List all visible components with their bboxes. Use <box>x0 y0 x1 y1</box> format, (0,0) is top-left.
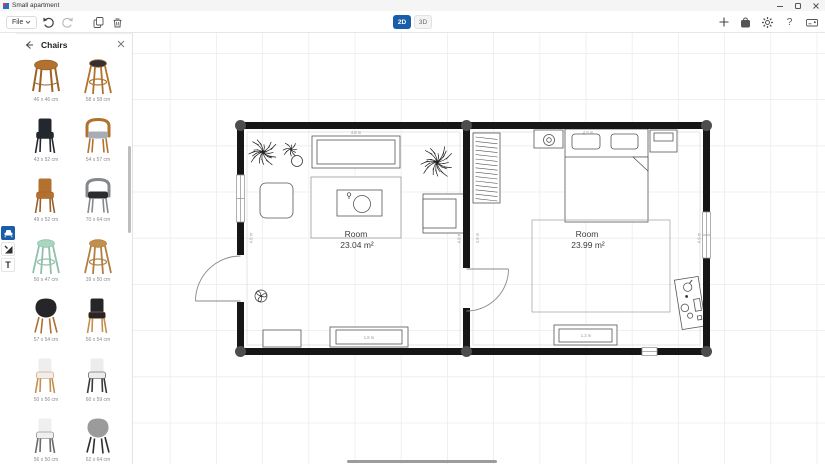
add-button[interactable] <box>716 15 731 30</box>
chair-thumbnail <box>26 416 66 456</box>
plant-pot[interactable] <box>292 156 303 167</box>
chair-dimensions: 56 x 50 cm <box>34 457 58 463</box>
minimize-button[interactable] <box>771 0 789 11</box>
chair-thumbnail <box>78 356 118 396</box>
chair-item[interactable]: 50 x 47 cm <box>20 236 72 296</box>
chair-thumbnail <box>78 56 118 96</box>
chair-item[interactable]: 43 x 52 cm <box>20 116 72 176</box>
nightstand-left[interactable] <box>534 130 563 148</box>
rug[interactable] <box>532 220 670 312</box>
bed[interactable] <box>565 129 648 222</box>
trash-icon <box>111 16 124 29</box>
titlebar: Small apartment <box>0 0 825 11</box>
chair-dimensions: 39 x 50 cm <box>86 277 110 283</box>
catalog-header: Chairs <box>16 34 132 56</box>
grid-lines <box>133 33 825 464</box>
window-bottom-wall <box>642 348 657 356</box>
armchair[interactable] <box>260 183 293 218</box>
window-controls <box>771 0 825 11</box>
copy-button[interactable] <box>91 15 106 30</box>
chair-thumbnail <box>78 296 118 336</box>
window-title: Small apartment <box>12 2 59 9</box>
close-icon <box>812 2 820 10</box>
shopping-bag-icon <box>739 16 752 29</box>
toolbar: File <box>0 11 825 33</box>
desk-left-room[interactable] <box>423 194 464 233</box>
sideboard-top[interactable] <box>312 136 400 168</box>
room-right-area: 23.99 m² <box>571 240 605 250</box>
chair-dimensions: 50 x 56 cm <box>34 397 58 403</box>
chair-dimensions: 60 x 59 cm <box>86 397 110 403</box>
floorplan-canvas[interactable]: Room 23.04 m² Room 23.99 m² 4.8 m 4.9 m … <box>133 33 825 464</box>
close-button[interactable] <box>807 0 825 11</box>
chair-thumbnail <box>26 176 66 216</box>
nightstand-right[interactable] <box>650 130 677 152</box>
file-menu-button[interactable]: File <box>6 16 37 29</box>
chair-thumbnail <box>26 236 66 276</box>
chair-dimensions: 62 x 64 cm <box>86 457 110 463</box>
ceiling-fan-icon[interactable] <box>255 290 267 302</box>
chair-item[interactable]: 56 x 50 cm <box>20 416 72 464</box>
chair-item[interactable]: 70 x 64 cm <box>72 176 124 236</box>
dim-room-left-top: 4.8 m <box>351 130 362 135</box>
app-window: Small apartment File <box>0 0 825 464</box>
entrance-door <box>196 256 241 301</box>
dim-room-right-east: 4.9 m <box>697 232 702 243</box>
chair-dimensions: 54 x 57 cm <box>86 157 110 163</box>
dim-dresser-bottom: 1.3 m <box>581 333 592 338</box>
dim-sideboard-bottom: 1.8 m <box>364 335 375 340</box>
catalog-title: Chairs <box>41 40 67 50</box>
panel-scrollbar[interactable] <box>128 146 131 233</box>
chair-dimensions: 49 x 52 cm <box>34 217 58 223</box>
license-button[interactable] <box>804 15 819 30</box>
copy-icon <box>92 16 105 29</box>
settings-button[interactable] <box>760 15 775 30</box>
file-menu-label: File <box>12 19 23 26</box>
undo-icon <box>42 16 55 29</box>
chair-item[interactable]: 58 x 58 cm <box>72 56 124 116</box>
tv-stand[interactable] <box>263 330 301 347</box>
floorplan: Room 23.04 m² Room 23.99 m² 4.8 m 4.9 m … <box>133 33 825 464</box>
shop-button[interactable] <box>738 15 753 30</box>
chair-dimensions: 43 x 52 cm <box>34 157 58 163</box>
help-icon: ? <box>787 17 793 28</box>
pillow <box>572 134 600 149</box>
chevron-down-icon <box>25 19 31 25</box>
chair-dimensions: 70 x 64 cm <box>86 217 110 223</box>
chair-dimensions: 58 x 58 cm <box>86 97 110 103</box>
window-left-wall <box>237 175 245 222</box>
chair-thumbnail <box>78 416 118 456</box>
text-tool-button[interactable]: T <box>1 258 15 272</box>
chair-thumbnail <box>78 116 118 156</box>
chair-dimensions: 50 x 47 cm <box>34 277 58 283</box>
chair-thumbnail <box>78 236 118 276</box>
chair-dimensions: 57 x 54 cm <box>34 337 58 343</box>
catalog-panel: Chairs 46 x 46 cm 58 x 58 cm 43 x 52 cm … <box>16 33 133 464</box>
chair-item[interactable]: 57 x 54 cm <box>20 296 72 356</box>
chair-item[interactable]: 49 x 52 cm <box>20 176 72 236</box>
chair-item[interactable]: 46 x 46 cm <box>20 56 72 116</box>
view-toggle: 2D 3D <box>393 15 432 29</box>
chair-item[interactable]: 60 x 59 cm <box>72 356 124 416</box>
dim-room-left-west: 4.8 m <box>249 232 254 243</box>
dim-room-left-east: 4.8 m <box>457 232 462 243</box>
back-button[interactable] <box>24 40 34 50</box>
canvas-horizontal-scrollbar[interactable] <box>347 460 497 463</box>
chair-thumbnail <box>26 116 66 156</box>
card-icon <box>805 16 819 29</box>
room-left-name: Room <box>345 229 368 239</box>
view-3d-button[interactable]: 3D <box>414 15 432 29</box>
chair-item[interactable]: 39 x 50 cm <box>72 236 124 296</box>
undo-button[interactable] <box>41 15 56 30</box>
chair-item[interactable]: 54 x 57 cm <box>72 116 124 176</box>
furniture-icon <box>3 228 14 239</box>
chair-list: 46 x 46 cm 58 x 58 cm 43 x 52 cm 54 x 57… <box>20 56 124 464</box>
chair-item[interactable]: 62 x 64 cm <box>72 416 124 464</box>
plus-icon <box>718 16 730 28</box>
chair-thumbnail <box>26 56 66 96</box>
plant[interactable] <box>283 143 297 156</box>
measure-icon <box>3 244 14 255</box>
dim-room-right-top: 4.9 m <box>583 130 594 135</box>
text-tool-icon: T <box>5 261 11 270</box>
chair-thumbnail <box>26 296 66 336</box>
minimize-icon <box>776 2 784 10</box>
pillow <box>611 134 638 149</box>
measure-tool-button[interactable] <box>1 242 15 256</box>
app-icon <box>3 3 9 9</box>
chair-item[interactable]: 56 x 54 cm <box>72 296 124 356</box>
chair-thumbnail <box>78 176 118 216</box>
chair-item[interactable]: 50 x 56 cm <box>20 356 72 416</box>
redo-button[interactable] <box>60 15 75 30</box>
help-button[interactable]: ? <box>782 15 797 30</box>
chair-dimensions: 56 x 54 cm <box>86 337 110 343</box>
maximize-button[interactable] <box>789 0 807 11</box>
view-2d-button[interactable]: 2D <box>393 15 411 29</box>
delete-button[interactable] <box>110 15 125 30</box>
room-right-name: Room <box>576 229 599 239</box>
panel-close-button[interactable] <box>116 39 126 49</box>
tool-rail: T <box>0 33 16 464</box>
redo-icon <box>61 16 74 29</box>
chair-thumbnail <box>26 356 66 396</box>
dim-room-right-west: 4.9 m <box>475 232 480 243</box>
chair-dimensions: 46 x 46 cm <box>34 97 58 103</box>
window-right-wall <box>703 212 711 258</box>
room-left-area: 23.04 m² <box>340 240 374 250</box>
maximize-icon <box>794 2 802 10</box>
furniture-tool-button[interactable] <box>1 226 15 240</box>
gear-icon <box>761 16 774 29</box>
